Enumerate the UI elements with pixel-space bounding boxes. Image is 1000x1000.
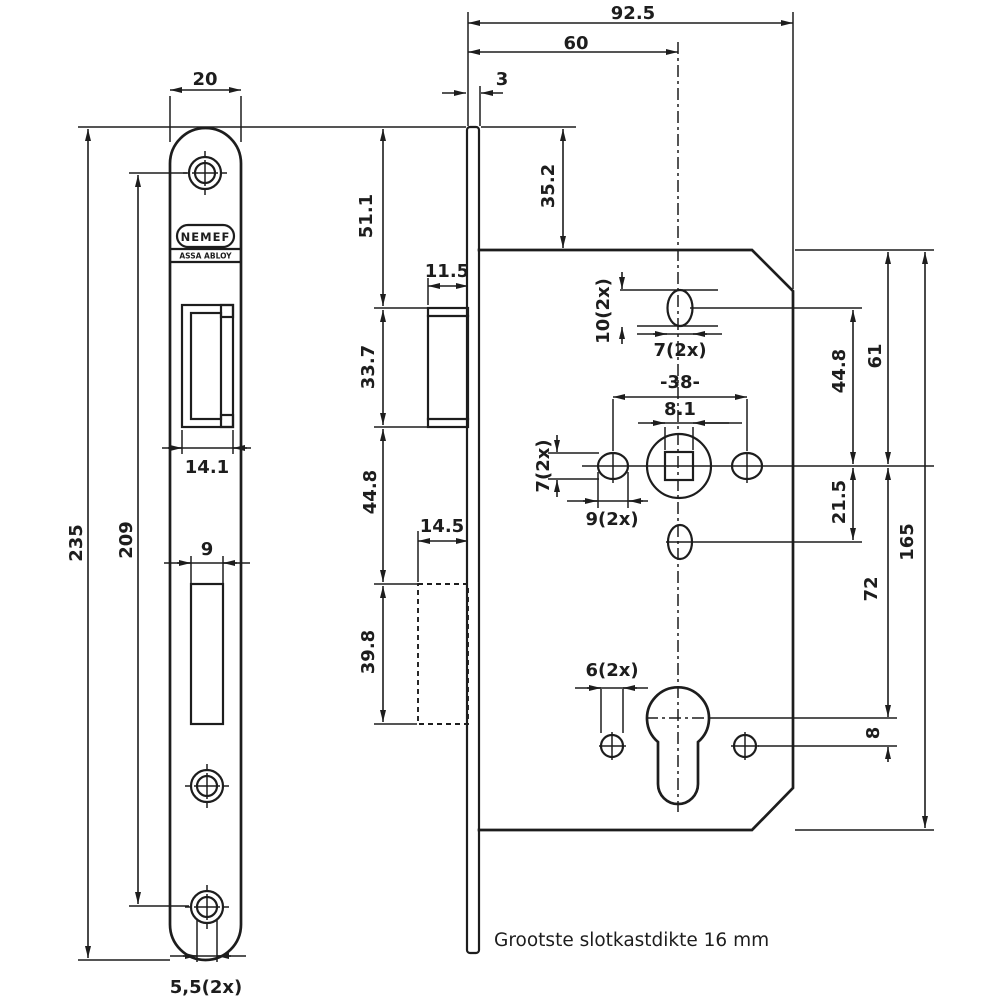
lock-technical-drawing: NEMEF ASSA ABLOY — [0, 0, 1000, 1000]
dim-label-spindle-to-cylinder: 72 — [861, 576, 882, 601]
dim-label-cylinder-to-fixholes: 8 — [863, 727, 884, 740]
dim-label-oval-hole-height: 10(2x) — [593, 278, 614, 344]
lock-case-view — [479, 250, 793, 830]
deadbolt-side-hidden — [418, 584, 468, 724]
dim-label-case-top-to-spindle: 61 — [865, 343, 886, 368]
screw-hole-top — [183, 151, 227, 195]
dim-label-bolt-height: 39.8 — [358, 630, 379, 674]
dim-label-spindle-to-lower-oval: 21.5 — [829, 480, 850, 524]
drawing-line — [221, 415, 233, 427]
dim-label-spindle-square: 8.1 — [664, 399, 696, 420]
screw-hole-middle — [185, 764, 229, 808]
dim-label-side-hole-width: 9(2x) — [585, 509, 638, 530]
dim-label-fix-hole-dia: 6(2x) — [585, 660, 638, 681]
technical-drawing-page: NEMEF ASSA ABLOY — [0, 0, 1000, 1000]
case-outline — [479, 250, 793, 830]
dim-label-faceplate-thickness: 3 — [496, 69, 509, 90]
dim-label-oval-to-spindle: 44.8 — [829, 349, 850, 393]
dim-label-faceplate-height: 235 — [66, 524, 87, 562]
dimension-lines — [78, 12, 934, 962]
dim-label-side-hole-spacing: -38- — [660, 372, 700, 393]
drawing-line — [428, 308, 468, 427]
dim-label-backset: 60 — [563, 33, 588, 54]
note-text: Grootste slotkastdikte 16 mm — [494, 930, 769, 951]
dim-label-side-hole-height: 7(2x) — [533, 439, 554, 492]
dim-label-screw-hole-dia: 5,5(2x) — [170, 977, 242, 998]
dim-label-latch-height: 33.7 — [358, 345, 379, 389]
dim-label-case-height: 165 — [897, 523, 918, 561]
faceplate-side-strip — [467, 127, 479, 953]
deadbolt-cutout — [191, 584, 223, 724]
dim-label-oval-hole-width: 7(2x) — [653, 340, 706, 361]
dim-label-latch-to-bolt: 44.8 — [360, 470, 381, 514]
dim-label-latch-cutout-width: 14.1 — [185, 457, 229, 478]
drawing-line — [221, 305, 233, 317]
dimension-labels: 2023520914.195,5(2x)92.560351.135.211.53… — [66, 3, 918, 998]
logo-text: NEMEF — [181, 230, 231, 244]
latch-cutout — [182, 305, 233, 427]
dim-label-bolt-cutout-width: 9 — [201, 539, 214, 560]
dim-label-top-to-latch: 51.1 — [356, 194, 377, 238]
faceplate-side-view — [418, 127, 479, 953]
dim-label-case-depth-total: 92.5 — [611, 3, 655, 24]
dim-label-bolt-depth: 14.5 — [420, 516, 464, 537]
upper-oval-hole — [668, 290, 693, 326]
brand-logo: NEMEF ASSA ABLOY — [171, 225, 240, 262]
dim-label-faceplate-width: 20 — [192, 69, 217, 90]
screw-hole-bottom — [185, 885, 229, 929]
latch-bolt-side — [428, 308, 468, 427]
dim-label-top-to-case: 35.2 — [538, 164, 559, 208]
drawing-line — [182, 305, 233, 427]
sub-logo-text: ASSA ABLOY — [179, 252, 232, 261]
dim-label-latch-depth: 11.5 — [425, 261, 469, 282]
drawing-line — [191, 313, 221, 419]
dim-label-screw-distance: 209 — [116, 521, 137, 559]
